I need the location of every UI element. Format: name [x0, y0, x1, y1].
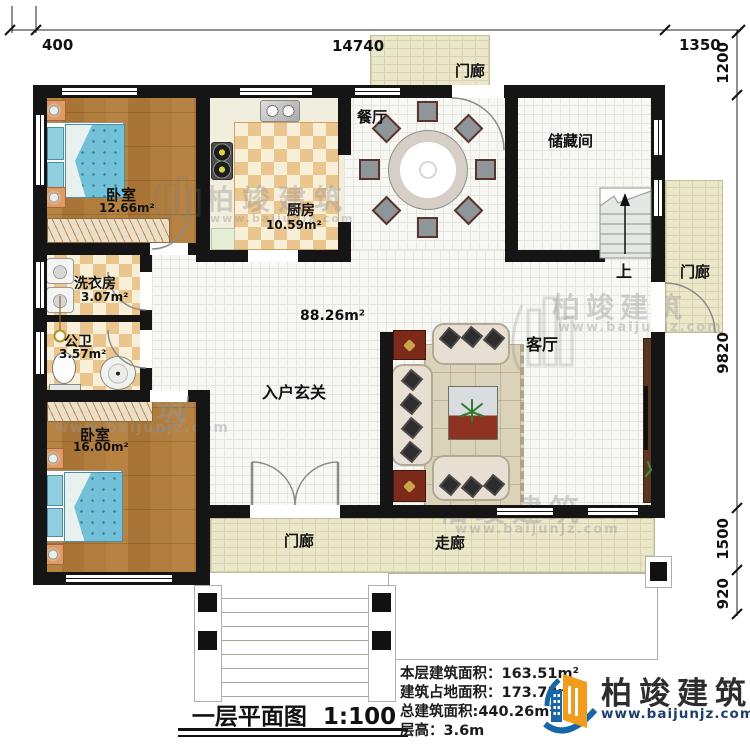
room-area-bedroom1: 12.66m² [99, 201, 155, 215]
tv [644, 386, 648, 450]
room-label-storage: 储藏间 [548, 130, 593, 151]
title-underline [178, 728, 408, 731]
title-underline2 [178, 735, 408, 737]
info-height-value: 3.6m [444, 723, 485, 739]
window [66, 572, 172, 585]
info-floor-area-value: 163.51m² [502, 666, 579, 682]
info-floor-area: 本层建筑面积：163.51m² [400, 662, 579, 683]
stove [211, 142, 233, 180]
corner-cabinet [393, 330, 426, 360]
plan-title-text: 一层平面图 [192, 704, 307, 730]
entry-steps [222, 585, 368, 702]
terrace [388, 573, 658, 660]
wall [338, 85, 351, 155]
door-opening [651, 282, 665, 332]
kitchen-counter [211, 228, 235, 250]
dim-top-14740: 14740 [332, 37, 384, 55]
partition-wall [380, 332, 393, 510]
dining-table [388, 130, 468, 210]
entry-door-opening [250, 505, 340, 518]
corridor-pillar-column [650, 562, 667, 581]
wall [505, 85, 518, 262]
door-opening [140, 330, 152, 368]
room-label-kitchen: 厨房 [287, 200, 315, 220]
dim-top-400: 400 [42, 36, 73, 54]
pillar-left-column2 [198, 631, 217, 650]
room-label-porch-bottom: 门廊 [284, 530, 314, 551]
info-total-area-label: 总建筑面积: [400, 704, 478, 720]
room-label-living: 客厅 [526, 331, 558, 355]
hall-area-label: 88.26m² [300, 308, 365, 324]
plan-title: 一层平面图 1:100 [180, 697, 408, 731]
window [588, 505, 638, 518]
room-label-dining: 餐厅 [357, 106, 387, 127]
window [355, 85, 400, 98]
floor-plan-sheet: 柏竣建筑 www.baijunjz.com 柏竣建筑 www.baijunjz.… [0, 0, 750, 746]
room-label-corridor: 走廊 [435, 532, 465, 553]
info-height: 层高：3.6m [400, 719, 484, 740]
dining-chair [417, 217, 438, 238]
info-footprint-label: 建筑占地面积： [400, 685, 502, 701]
bathroom-sink [100, 356, 136, 390]
brand-url: www.baijunjz.com [601, 706, 750, 722]
info-footprint: 建筑占地面积：173.73m² [400, 681, 579, 702]
room-area-kitchen: 10.59m² [266, 218, 322, 232]
kitchen-sink [260, 100, 300, 122]
door-opening [150, 243, 188, 255]
pillar-right-column2 [372, 631, 391, 650]
info-height-label: 层高： [400, 723, 444, 739]
room-area-bathroom: 3.57m² [59, 347, 106, 361]
window [62, 85, 137, 98]
window [497, 505, 553, 518]
room-area-laundry: 3.07m² [81, 290, 128, 304]
dining-chair [359, 159, 380, 180]
door-opening [150, 390, 188, 402]
window [240, 85, 312, 98]
info-floor-area-label: 本层建筑面积： [400, 666, 502, 682]
sofa-left [391, 364, 433, 466]
dining-chair [417, 101, 438, 122]
coffee-table [448, 386, 498, 440]
door-opening [140, 272, 152, 310]
dining-chair [475, 159, 496, 180]
room-label-foyer: 入户玄关 [262, 379, 326, 403]
room-label-porch-right: 门廊 [680, 261, 710, 282]
window [33, 332, 47, 374]
dim-right-9820: 9820 [714, 332, 732, 374]
watermark-url: www.baijunjz.com [558, 320, 723, 335]
washing-machine [46, 287, 74, 313]
window [651, 120, 665, 155]
dim-right-1200: 1200 [714, 42, 732, 84]
wall [140, 243, 152, 402]
wall [47, 315, 140, 322]
wall [196, 85, 210, 250]
wardrobe [47, 218, 170, 243]
bed [42, 470, 122, 542]
info-total-area: 总建筑面积:440.26m² [400, 700, 556, 721]
room-area-bedroom2: 16.00m² [73, 440, 129, 454]
door-opening [248, 250, 298, 262]
wall [505, 250, 605, 262]
plan-scale: 1:100 [323, 704, 396, 730]
room-label-porch-top: 门廊 [455, 60, 485, 81]
watermark-url: www.baijunjz.com [455, 522, 620, 537]
dim-right-920: 920 [714, 578, 732, 609]
dim-right-1500: 1500 [714, 518, 732, 560]
stairs-up-label: 上 [616, 258, 632, 282]
sofa-bottom [432, 455, 510, 501]
washing-machine [46, 258, 74, 284]
window [651, 180, 665, 216]
pillar-left-column [198, 593, 217, 612]
wall [196, 390, 210, 585]
info-footprint-value: 173.73m² [502, 685, 579, 701]
wardrobe [47, 400, 153, 422]
info-total-area-value: 440.26m² [478, 704, 555, 720]
corner-cabinet [393, 470, 426, 502]
sofa-top [432, 323, 510, 365]
window [33, 262, 47, 308]
window [33, 115, 47, 185]
pillar-right-column [372, 593, 391, 612]
door-opening [452, 85, 504, 98]
